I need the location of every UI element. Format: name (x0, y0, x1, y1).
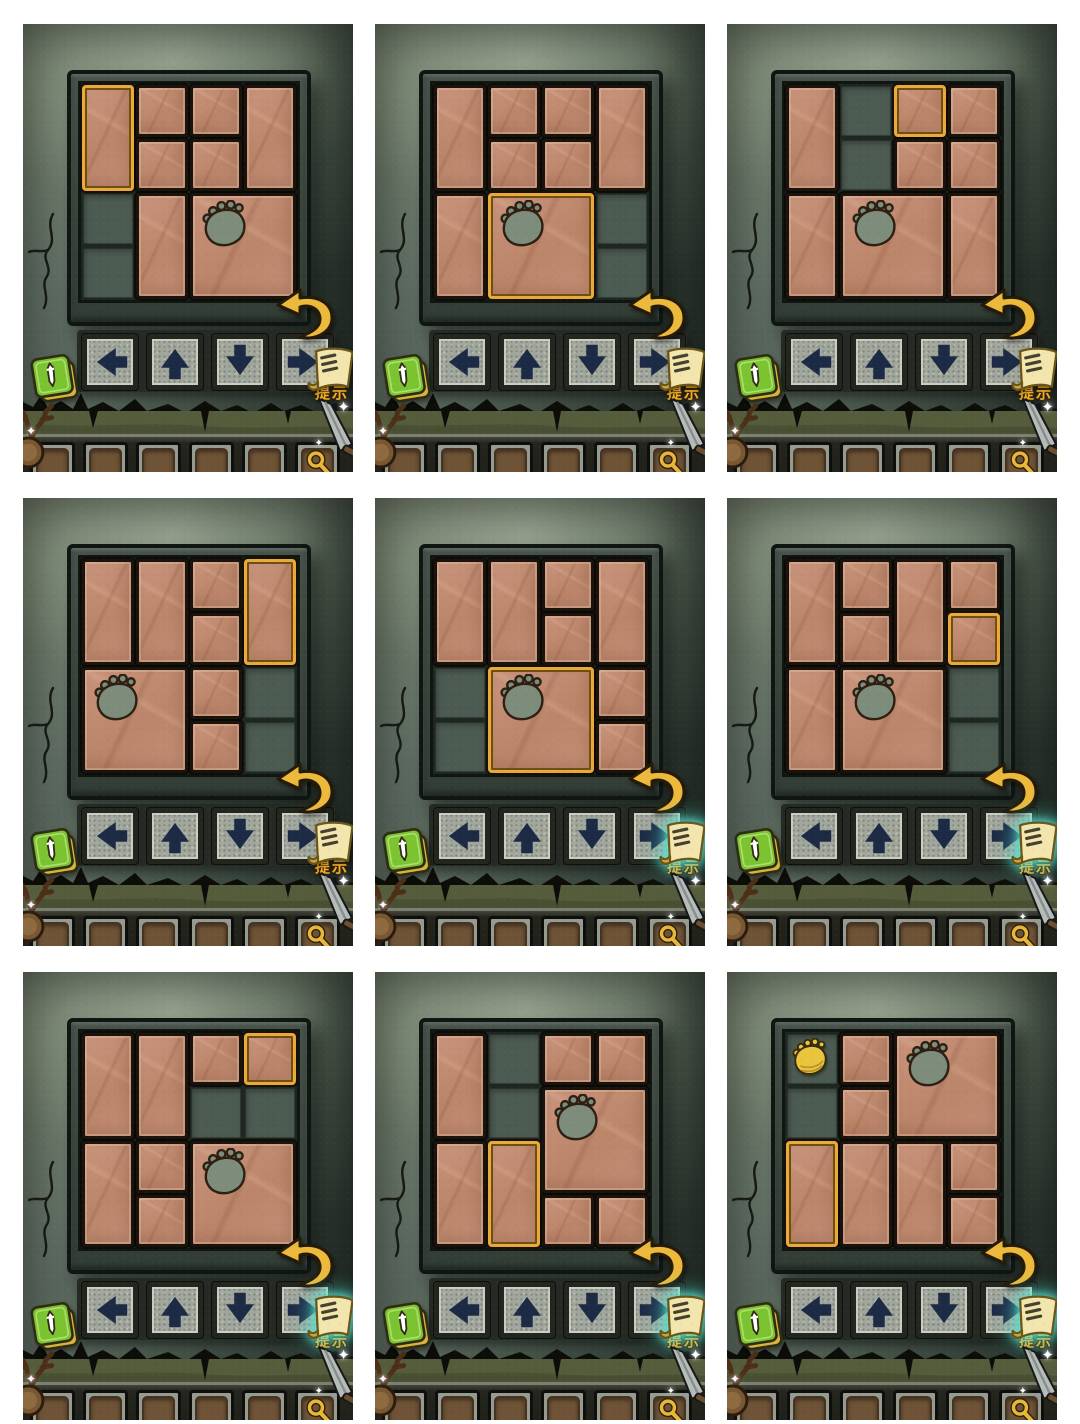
puzzle-tile-small[interactable] (948, 139, 1000, 191)
puzzle-tile-small[interactable] (190, 559, 242, 611)
board-cells (433, 1032, 649, 1248)
inventory-slot-inner (89, 1396, 122, 1420)
inventory-slot[interactable] (594, 916, 639, 946)
puzzle-tile-vertical[interactable] (136, 193, 188, 299)
inventory-slot-inner (547, 448, 580, 472)
puzzle-tile-small[interactable] (136, 85, 188, 137)
inventory-slot[interactable] (83, 442, 128, 472)
puzzle-tile-small-highlighted[interactable] (948, 613, 1000, 665)
inventory-slot-inner (846, 1396, 879, 1420)
arrow-down-icon (921, 1287, 967, 1333)
inventory-slot-inner (600, 448, 633, 472)
puzzle-tile-vertical[interactable] (434, 193, 486, 299)
move-down-button[interactable] (212, 1282, 268, 1338)
puzzle-tile-small[interactable] (542, 1033, 594, 1085)
undo-arrow-button[interactable] (973, 1234, 1043, 1292)
inventory-slot-inner (441, 448, 474, 472)
arrow-down-icon (569, 1287, 615, 1333)
arrow-left-icon (87, 1287, 133, 1333)
arrow-up-icon (504, 339, 550, 385)
antler-decoration (375, 872, 423, 946)
board-cells (785, 558, 1001, 774)
puzzle-tile-small[interactable] (840, 613, 892, 665)
empty-cell (841, 140, 891, 190)
puzzle-tile-vertical[interactable] (840, 1141, 892, 1247)
empty-cell (597, 194, 647, 244)
hint-scroll-icon (304, 818, 353, 870)
puzzle-tile-big-claw[interactable] (542, 1087, 648, 1193)
claw-hole-icon (849, 200, 905, 250)
hint-scroll-icon (1008, 818, 1057, 870)
arrow-down-icon (217, 813, 263, 859)
inventory-slot-inner (494, 448, 527, 472)
puzzle-tile-small[interactable] (840, 1087, 892, 1139)
puzzle-tile-small[interactable] (136, 1195, 188, 1247)
sword-decoration (1011, 1344, 1057, 1414)
inventory-slot-inner (248, 922, 281, 946)
undo-arrow-button[interactable] (973, 760, 1043, 818)
inventory-slot[interactable] (946, 442, 991, 472)
inventory-bar (23, 1382, 353, 1420)
inventory-bar (375, 908, 705, 946)
puzzle-tile-vertical[interactable] (786, 667, 838, 773)
move-up-button[interactable] (147, 334, 203, 390)
arrow-left-icon (791, 813, 837, 859)
puzzle-tile-vertical[interactable] (434, 1033, 486, 1139)
puzzle-tile-vertical[interactable] (82, 559, 134, 665)
inventory-slot-inner (600, 922, 633, 946)
puzzle-tile-small[interactable] (190, 613, 242, 665)
board-cells (785, 84, 1001, 300)
undo-arrow-button[interactable] (269, 286, 339, 344)
inventory-slot[interactable] (435, 916, 480, 946)
inventory-slot[interactable] (242, 442, 287, 472)
puzzle-tile-big-claw[interactable] (82, 667, 188, 773)
puzzle-panel-8: 提示 ✦ ✦ ✦ (375, 972, 705, 1420)
inventory-slot[interactable] (488, 442, 533, 472)
hint-button[interactable]: 提示 (655, 1292, 705, 1349)
claw-hole-icon (497, 200, 553, 250)
sword-decoration (1011, 396, 1057, 466)
undo-arrow-button[interactable] (973, 286, 1043, 344)
claw-hole-icon (551, 1094, 607, 1144)
move-down-button[interactable] (916, 334, 972, 390)
board-cells (81, 558, 297, 774)
move-up-button[interactable] (851, 1282, 907, 1338)
move-left-button[interactable] (786, 1282, 842, 1338)
puzzle-tile-small[interactable] (488, 139, 540, 191)
inventory-slot[interactable] (787, 1390, 832, 1420)
inventory-slot-inner (195, 1396, 228, 1420)
puzzle-tile-small-highlighted[interactable] (244, 1033, 296, 1085)
hint-scroll-icon (656, 818, 705, 870)
move-left-button[interactable] (434, 808, 490, 864)
inventory-slot[interactable] (189, 442, 234, 472)
arrow-up-icon (856, 1287, 902, 1333)
inventory-bar (727, 908, 1057, 946)
arrow-up-icon (856, 813, 902, 859)
sword-decoration (1011, 870, 1057, 940)
move-up-button[interactable] (851, 808, 907, 864)
hint-button[interactable]: 提示 (655, 344, 705, 401)
undo-arrow-button[interactable] (269, 1234, 339, 1292)
inventory-slot[interactable] (189, 916, 234, 946)
puzzle-tile-vertical-highlighted[interactable] (244, 559, 296, 665)
claw-hole-icon (199, 200, 255, 250)
inventory-slot[interactable] (946, 916, 991, 946)
inventory-bar (23, 434, 353, 472)
puzzle-tile-vertical[interactable] (948, 193, 1000, 299)
hint-scroll-icon (304, 344, 353, 396)
undo-arrow-button[interactable] (621, 286, 691, 344)
inventory-slot-inner (494, 1396, 527, 1420)
inventory-slot-inner (952, 448, 985, 472)
claw-hole-icon (849, 674, 905, 724)
antler-decoration (727, 872, 775, 946)
puzzle-tile-big-claw-highlighted[interactable] (488, 667, 594, 773)
puzzle-tile-small[interactable] (190, 721, 242, 773)
hint-scroll-icon (656, 1292, 705, 1344)
inventory-slot[interactable] (136, 916, 181, 946)
puzzle-tile-big-claw[interactable] (840, 667, 946, 773)
puzzle-tile-big-claw-highlighted[interactable] (488, 193, 594, 299)
inventory-slot-inner (195, 922, 228, 946)
move-up-button[interactable] (851, 334, 907, 390)
puzzle-tile-small[interactable] (840, 559, 892, 611)
inventory-slot-inner (899, 1396, 932, 1420)
hint-button[interactable]: 提示 (303, 818, 353, 875)
puzzle-tile-small-highlighted[interactable] (894, 85, 946, 137)
arrow-up-icon (504, 1287, 550, 1333)
hint-button[interactable]: 提示 (1007, 1292, 1057, 1349)
inventory-slot-inner (248, 448, 281, 472)
arrow-left-icon (791, 339, 837, 385)
inventory-slot[interactable] (946, 1390, 991, 1420)
sword-decoration (307, 396, 353, 466)
puzzle-panel-3: 提示 ✦ ✦ ✦ (727, 24, 1057, 472)
inventory-slot[interactable] (893, 442, 938, 472)
move-down-button[interactable] (564, 334, 620, 390)
sword-decoration (659, 870, 705, 940)
inventory-slot-inner (793, 1396, 826, 1420)
inventory-slot[interactable] (787, 916, 832, 946)
arrow-left-icon (87, 813, 133, 859)
hint-scroll-icon (656, 344, 705, 396)
board-cells (433, 84, 649, 300)
move-left-button[interactable] (786, 808, 842, 864)
move-down-button[interactable] (212, 334, 268, 390)
arrow-up-icon (856, 339, 902, 385)
empty-cell (949, 668, 999, 718)
move-up-button[interactable] (499, 334, 555, 390)
puzzle-tile-vertical[interactable] (136, 1033, 188, 1139)
hint-scroll-icon (304, 1292, 353, 1344)
arrow-left-icon (439, 813, 485, 859)
inventory-slot[interactable] (840, 1390, 885, 1420)
puzzle-tile-vertical[interactable] (82, 1033, 134, 1139)
board-cells (785, 1032, 1001, 1248)
arrow-up-icon (504, 813, 550, 859)
undo-arrow-button[interactable] (621, 760, 691, 818)
puzzle-tile-small[interactable] (190, 667, 242, 719)
inventory-slot[interactable] (840, 442, 885, 472)
empty-cell (489, 1088, 539, 1138)
puzzle-tile-small[interactable] (190, 139, 242, 191)
puzzle-panel-1: 提示 ✦ ✦ ✦ (23, 24, 353, 472)
hint-scroll-icon (1008, 1292, 1057, 1344)
inventory-slot[interactable] (488, 916, 533, 946)
puzzle-tile-small[interactable] (542, 1195, 594, 1247)
inventory-slot[interactable] (189, 1390, 234, 1420)
hint-button[interactable]: 提示 (303, 344, 353, 401)
inventory-slot[interactable] (136, 1390, 181, 1420)
arrow-down-icon (921, 813, 967, 859)
puzzle-tile-vertical[interactable] (786, 85, 838, 191)
puzzle-tile-small[interactable] (894, 139, 946, 191)
puzzle-panel-5: 提示 ✦ ✦ ✦ (375, 498, 705, 946)
puzzle-tile-vertical[interactable] (244, 85, 296, 191)
inventory-slot-inner (142, 448, 175, 472)
inventory-slot[interactable] (541, 1390, 586, 1420)
puzzle-panel-7: 提示 ✦ ✦ ✦ (23, 972, 353, 1420)
inventory-slot-inner (899, 448, 932, 472)
inventory-slot-inner (846, 922, 879, 946)
walkthrough-grid: 提示 ✦ ✦ ✦ (0, 0, 1080, 1420)
inventory-slot-inner (793, 448, 826, 472)
inventory-slot[interactable] (435, 1390, 480, 1420)
puzzle-tile-vertical[interactable] (894, 1141, 946, 1247)
puzzle-tile-small[interactable] (190, 1033, 242, 1085)
move-left-button[interactable] (786, 334, 842, 390)
antler-decoration (727, 398, 775, 472)
puzzle-tile-big-claw[interactable] (190, 193, 296, 299)
puzzle-panel-6: 提示 ✦ ✦ ✦ (727, 498, 1057, 946)
puzzle-tile-vertical[interactable] (596, 85, 648, 191)
hint-button[interactable]: 提示 (1007, 818, 1057, 875)
inventory-slot[interactable] (136, 442, 181, 472)
puzzle-tile-vertical-highlighted[interactable] (82, 85, 134, 191)
move-up-button[interactable] (499, 808, 555, 864)
hint-scroll-icon (1008, 344, 1057, 396)
empty-cell (245, 1088, 295, 1138)
inventory-bar (375, 1382, 705, 1420)
antler-decoration (375, 398, 423, 472)
move-down-button[interactable] (916, 808, 972, 864)
inventory-slot-inner (441, 922, 474, 946)
arrow-left-icon (439, 1287, 485, 1333)
puzzle-tile-vertical[interactable] (434, 559, 486, 665)
move-left-button[interactable] (82, 1282, 138, 1338)
move-left-button[interactable] (434, 334, 490, 390)
board-cells (81, 1032, 297, 1248)
hint-button[interactable]: 提示 (655, 818, 705, 875)
claw-hole-icon (903, 1040, 959, 1090)
inventory-slot-inner (899, 922, 932, 946)
inventory-slot-inner (952, 922, 985, 946)
puzzle-tile-vertical-highlighted[interactable] (488, 1141, 540, 1247)
inventory-slot-inner (142, 922, 175, 946)
move-up-button[interactable] (147, 808, 203, 864)
antler-decoration (23, 872, 71, 946)
inventory-slot-inner (547, 1396, 580, 1420)
puzzle-panel-9: 提示 ✦ ✦ ✦ (727, 972, 1057, 1420)
board-cells (81, 84, 297, 300)
puzzle-tile-vertical[interactable] (434, 1141, 486, 1247)
puzzle-panel-4: 提示 ✦ ✦ ✦ (23, 498, 353, 946)
puzzle-tile-small[interactable] (542, 139, 594, 191)
sword-decoration (307, 1344, 353, 1414)
empty-cell (83, 248, 133, 298)
puzzle-tile-small[interactable] (136, 1141, 188, 1193)
puzzle-tile-vertical[interactable] (596, 559, 648, 665)
arrow-down-icon (569, 813, 615, 859)
board-cells (433, 558, 649, 774)
antler-decoration (23, 1346, 71, 1420)
inventory-bar (375, 434, 705, 472)
inventory-slot[interactable] (594, 1390, 639, 1420)
move-up-button[interactable] (499, 1282, 555, 1338)
claw-hole-icon (497, 674, 553, 724)
inventory-slot[interactable] (83, 916, 128, 946)
inventory-slot-inner (494, 922, 527, 946)
arrow-down-icon (217, 1287, 263, 1333)
inventory-slot[interactable] (541, 916, 586, 946)
puzzle-tile-small[interactable] (840, 1033, 892, 1085)
puzzle-tile-small[interactable] (948, 559, 1000, 611)
move-down-button[interactable] (564, 808, 620, 864)
move-left-button[interactable] (82, 334, 138, 390)
inventory-slot[interactable] (435, 442, 480, 472)
arrow-down-icon (217, 339, 263, 385)
inventory-slot-inner (793, 922, 826, 946)
move-left-button[interactable] (82, 808, 138, 864)
inventory-slot-inner (248, 1396, 281, 1420)
puzzle-tile-big-claw[interactable] (894, 1033, 1000, 1139)
puzzle-tile-big-claw[interactable] (190, 1141, 296, 1247)
inventory-slot-inner (952, 1396, 985, 1420)
sword-decoration (307, 870, 353, 940)
empty-cell (83, 194, 133, 244)
empty-cell (435, 668, 485, 718)
inventory-bar (727, 1382, 1057, 1420)
puzzle-tile-vertical[interactable] (488, 559, 540, 665)
move-up-button[interactable] (147, 1282, 203, 1338)
inventory-slot[interactable] (488, 1390, 533, 1420)
empty-cell (191, 1088, 241, 1138)
inventory-slot-inner (600, 1396, 633, 1420)
puzzle-tile-vertical[interactable] (434, 85, 486, 191)
puzzle-tile-vertical[interactable] (786, 559, 838, 665)
puzzle-tile-small[interactable] (542, 613, 594, 665)
puzzle-tile-small[interactable] (948, 1141, 1000, 1193)
puzzle-tile-small[interactable] (596, 667, 648, 719)
puzzle-tile-small[interactable] (542, 85, 594, 137)
inventory-bar (23, 908, 353, 946)
inventory-slot[interactable] (893, 916, 938, 946)
hint-button[interactable]: 提示 (303, 1292, 353, 1349)
puzzle-tile-vertical[interactable] (894, 559, 946, 665)
puzzle-tile-small[interactable] (542, 559, 594, 611)
inventory-slot[interactable] (541, 442, 586, 472)
puzzle-tile-vertical[interactable] (82, 1141, 134, 1247)
empty-cell (435, 722, 485, 772)
claw-hole-icon (199, 1148, 255, 1198)
arrow-down-icon (921, 339, 967, 385)
inventory-slot-inner (547, 922, 580, 946)
inventory-slot-inner (846, 448, 879, 472)
move-down-button[interactable] (916, 1282, 972, 1338)
inventory-slot[interactable] (840, 916, 885, 946)
antler-decoration (375, 1346, 423, 1420)
arrow-up-icon (152, 339, 198, 385)
arrow-left-icon (791, 1287, 837, 1333)
arrow-left-icon (439, 339, 485, 385)
sword-decoration (659, 1344, 705, 1414)
inventory-slot[interactable] (83, 1390, 128, 1420)
puzzle-tile-big-claw[interactable] (840, 193, 946, 299)
arrow-down-icon (569, 339, 615, 385)
crown-target-icon (790, 1038, 834, 1078)
arrow-up-icon (152, 813, 198, 859)
antler-decoration (727, 1346, 775, 1420)
inventory-slot[interactable] (594, 442, 639, 472)
empty-cell (245, 668, 295, 718)
empty-cell (841, 86, 891, 136)
antler-decoration (23, 398, 71, 472)
sword-decoration (659, 396, 705, 466)
puzzle-tile-vertical-highlighted[interactable] (786, 1141, 838, 1247)
puzzle-tile-small[interactable] (136, 139, 188, 191)
arrow-left-icon (87, 339, 133, 385)
puzzle-panel-2: 提示 ✦ ✦ ✦ (375, 24, 705, 472)
puzzle-tile-small[interactable] (190, 85, 242, 137)
claw-hole-icon (91, 674, 147, 724)
hint-button[interactable]: 提示 (1007, 344, 1057, 401)
inventory-slot[interactable] (242, 1390, 287, 1420)
move-left-button[interactable] (434, 1282, 490, 1338)
inventory-slot[interactable] (893, 1390, 938, 1420)
inventory-bar (727, 434, 1057, 472)
arrow-up-icon (152, 1287, 198, 1333)
inventory-slot-inner (142, 1396, 175, 1420)
puzzle-tile-small[interactable] (596, 1033, 648, 1085)
inventory-slot-inner (441, 1396, 474, 1420)
puzzle-tile-small[interactable] (488, 85, 540, 137)
inventory-slot[interactable] (242, 916, 287, 946)
move-down-button[interactable] (212, 808, 268, 864)
move-down-button[interactable] (564, 1282, 620, 1338)
inventory-slot-inner (195, 448, 228, 472)
inventory-slot[interactable] (787, 442, 832, 472)
empty-cell (489, 1034, 539, 1084)
puzzle-tile-vertical[interactable] (136, 559, 188, 665)
undo-arrow-button[interactable] (621, 1234, 691, 1292)
puzzle-tile-vertical[interactable] (786, 193, 838, 299)
inventory-slot-inner (89, 448, 122, 472)
puzzle-tile-small[interactable] (948, 85, 1000, 137)
inventory-slot-inner (89, 922, 122, 946)
undo-arrow-button[interactable] (269, 760, 339, 818)
empty-cell (787, 1088, 837, 1138)
